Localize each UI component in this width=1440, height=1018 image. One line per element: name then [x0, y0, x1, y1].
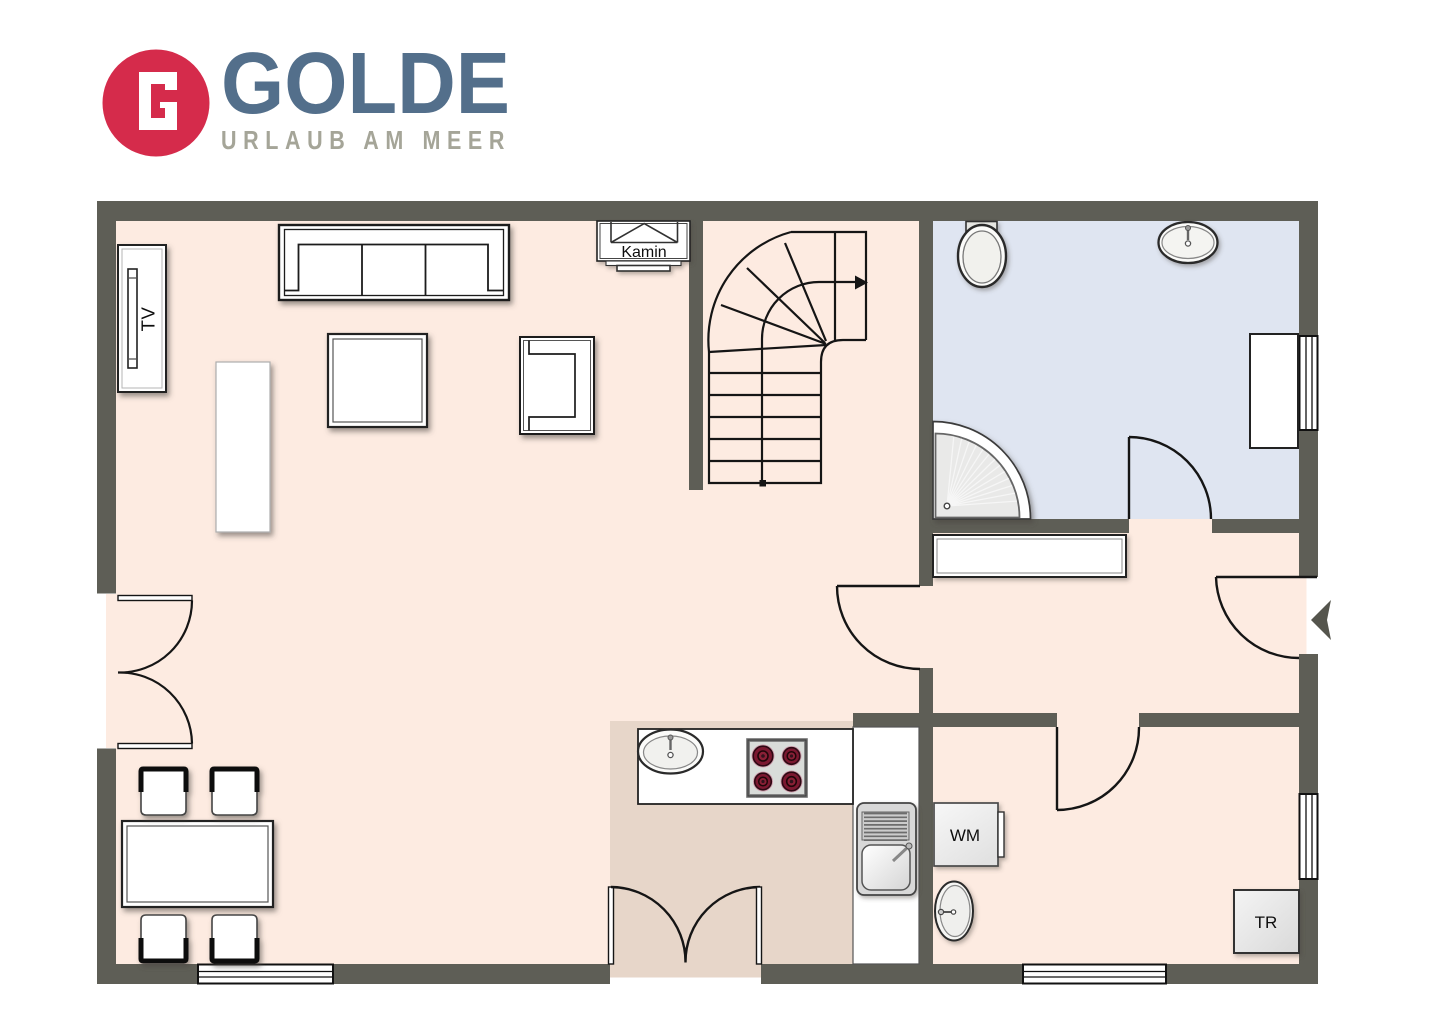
svg-text:WM: WM: [950, 826, 980, 845]
svg-text:URLAUB AM MEER: URLAUB AM MEER: [221, 125, 511, 155]
svg-text:GOLDE: GOLDE: [221, 35, 510, 132]
svg-text:Kamin: Kamin: [621, 244, 666, 261]
svg-text:TR: TR: [1255, 913, 1278, 932]
svg-text:TV: TV: [138, 307, 159, 332]
